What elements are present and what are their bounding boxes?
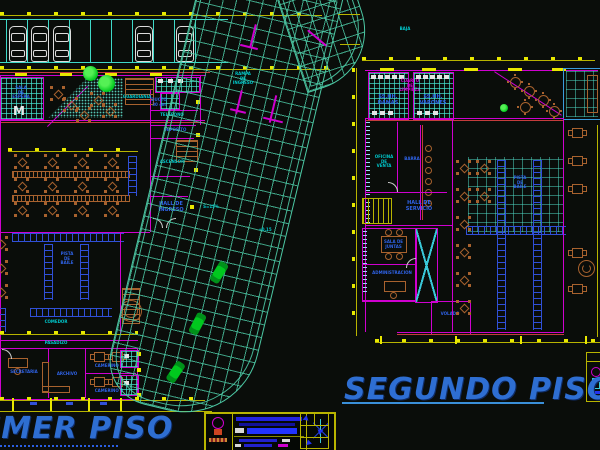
room-label: PASADIZO <box>36 341 76 346</box>
table-two <box>572 156 583 166</box>
table-two <box>94 377 105 387</box>
table <box>14 154 29 169</box>
chair <box>385 253 392 260</box>
stairs <box>362 198 392 224</box>
fixture <box>423 75 428 79</box>
table-two <box>94 352 105 362</box>
column-post <box>120 398 122 411</box>
wall-accent <box>397 334 564 335</box>
desk <box>384 281 406 292</box>
car-green-icon <box>188 312 207 336</box>
column-post <box>88 398 90 411</box>
counter <box>42 386 70 393</box>
stool <box>425 178 432 185</box>
table-two <box>572 248 583 258</box>
bench <box>12 195 130 202</box>
stool <box>425 156 432 163</box>
fixture <box>425 111 430 115</box>
room-label: SALA DE ESPERA <box>6 86 36 100</box>
column-post <box>380 336 382 344</box>
chair <box>390 292 397 299</box>
stool <box>425 167 432 174</box>
car-icon <box>31 26 49 62</box>
dimension-line <box>8 151 138 152</box>
legend-divider <box>301 425 328 426</box>
table <box>456 188 471 203</box>
column-post <box>585 336 587 344</box>
dance-strip <box>533 160 542 330</box>
room-label: DUCTO 30 cm <box>148 98 170 107</box>
column-post <box>455 336 457 344</box>
planter-icon <box>578 260 595 277</box>
fixture <box>371 75 376 79</box>
table <box>44 202 59 217</box>
dimension-line <box>338 14 360 15</box>
dimension-line <box>375 342 600 343</box>
room-label: OFICINA DE VENTA <box>371 155 397 169</box>
fixture <box>380 111 385 115</box>
first-floor-title: PRIMER PISO <box>0 411 173 446</box>
title-block-divider <box>232 414 233 450</box>
stall-divider <box>27 19 28 63</box>
column-post <box>520 336 522 344</box>
wall <box>362 300 415 301</box>
wall-dash <box>380 68 394 71</box>
legend-box <box>300 412 329 449</box>
revolving-door-icon: M <box>13 104 25 118</box>
bar-counter <box>128 156 137 196</box>
arrow-icon <box>303 415 311 423</box>
title-text-bar <box>244 444 272 447</box>
wall-dash <box>15 73 27 76</box>
axis-tag <box>66 402 73 405</box>
table <box>0 236 8 251</box>
table <box>456 216 471 231</box>
car-green-icon <box>209 260 229 284</box>
desk <box>8 358 28 368</box>
room-label: HALL DE SERVICIO <box>398 201 440 213</box>
ramp-label: S=15% <box>198 205 224 210</box>
table <box>104 154 119 169</box>
fixture <box>437 75 442 79</box>
axis-tag <box>30 402 37 405</box>
fixture <box>372 111 377 115</box>
round-table <box>510 77 521 88</box>
wall <box>452 120 453 332</box>
round-table <box>524 86 535 97</box>
chair <box>385 229 392 236</box>
title-text-chip <box>278 444 288 447</box>
wall-dash <box>508 68 522 71</box>
wall <box>563 118 564 333</box>
table <box>74 154 89 169</box>
table <box>102 103 117 118</box>
table <box>74 202 89 217</box>
dimension-line <box>597 125 598 337</box>
person-figure-icon <box>209 438 227 442</box>
dimension-line <box>356 68 357 336</box>
table-two <box>572 128 583 138</box>
dimension-line <box>340 44 360 45</box>
arrow-icon <box>306 439 312 446</box>
fixture <box>416 75 421 79</box>
chair <box>396 229 403 236</box>
person-figure-icon <box>214 429 222 435</box>
title-text-bar <box>236 417 302 421</box>
wall-dash <box>464 68 478 71</box>
wall <box>397 332 564 333</box>
wc-detail-rule <box>587 361 600 362</box>
table <box>104 178 119 193</box>
cad-canvas: SALA DE ESPERA M GUARDIANIA DUCTO 30 cm … <box>0 0 600 450</box>
wall <box>397 122 398 192</box>
table-two <box>572 184 583 194</box>
room-label: ARCHIVO <box>52 372 82 377</box>
arrow-icon <box>316 427 324 435</box>
fixture <box>385 75 390 79</box>
first-floor-title-underline <box>0 445 118 447</box>
table <box>0 260 8 275</box>
dance-strip <box>12 233 124 242</box>
second-floor-title-underline <box>342 402 544 404</box>
car-green-icon <box>165 360 185 384</box>
title-text-bar <box>239 423 295 426</box>
room-label: COMEDOR <box>36 320 76 325</box>
tree-icon <box>98 75 115 92</box>
wall-accent <box>365 120 563 121</box>
ramp-label: +0.15 <box>252 228 278 233</box>
dance-strip <box>466 226 566 235</box>
title-text-bar <box>247 428 297 434</box>
fixture <box>444 75 449 79</box>
room-label: PISTA DE BAILE <box>505 176 535 190</box>
table <box>456 244 471 259</box>
room-label: SALA DE JUNTAS <box>381 240 406 249</box>
stall-divider <box>132 19 133 63</box>
title-text-chip <box>235 444 241 447</box>
room-label: PISTA DE BAILE <box>52 252 82 266</box>
person-figure-icon <box>212 417 224 429</box>
room-label: ADMINISTRACION <box>372 271 412 276</box>
wall-dash <box>60 73 72 76</box>
stall-divider <box>6 19 7 63</box>
plant-icon <box>500 104 508 112</box>
legend-divider <box>301 437 328 438</box>
bar-counter <box>587 75 598 113</box>
car-icon <box>53 26 71 62</box>
title-block-rule <box>234 436 304 437</box>
table-two <box>572 284 583 294</box>
fixture <box>168 79 173 83</box>
fixture <box>417 111 422 115</box>
round-table <box>538 95 549 106</box>
column-post <box>50 398 52 411</box>
stall-divider <box>111 19 112 63</box>
table <box>44 178 59 193</box>
car-icon <box>9 26 27 62</box>
ramp-label: BAJA <box>392 27 418 32</box>
title-text-chip <box>235 428 244 433</box>
dance-strip <box>497 160 506 330</box>
axis-tag <box>100 402 107 405</box>
room-label: SS.HH. VARONES <box>419 95 447 107</box>
table <box>456 272 471 287</box>
table <box>76 107 91 122</box>
round-table <box>549 106 560 117</box>
window-strip <box>363 231 367 295</box>
round-table <box>520 102 531 113</box>
wall <box>365 118 563 119</box>
table <box>44 154 59 169</box>
car-icon <box>135 26 153 62</box>
wall <box>365 192 447 193</box>
title-text-chip <box>282 439 290 442</box>
fixture <box>378 75 383 79</box>
table <box>74 178 89 193</box>
wall-dash <box>422 68 436 71</box>
fixture <box>388 111 393 115</box>
wall-dash <box>150 73 162 76</box>
table <box>456 160 471 175</box>
chair <box>396 253 403 260</box>
bar-room <box>563 68 600 120</box>
stall-divider <box>153 19 154 63</box>
fixture <box>430 75 435 79</box>
ramp-label: RAMPA DE INGRESO <box>228 72 258 86</box>
fixture <box>158 79 163 83</box>
table <box>14 178 29 193</box>
table <box>476 188 491 203</box>
room-label: SS.HH. DAMAS <box>374 95 402 107</box>
room-label: SECRETARIA <box>2 370 46 375</box>
table <box>456 300 471 315</box>
legend-divider <box>314 413 315 425</box>
table <box>0 284 8 299</box>
dimension-line <box>362 60 595 61</box>
stair-shaft <box>415 228 438 303</box>
dimension-ticks <box>352 68 355 336</box>
room-label: BARRA <box>402 157 422 162</box>
dance-strip <box>0 308 6 332</box>
stall-divider <box>90 19 91 63</box>
table <box>14 202 29 217</box>
wall <box>365 225 452 226</box>
stall-divider <box>174 19 175 63</box>
dance-strip <box>30 308 112 317</box>
bench <box>12 171 130 178</box>
title-text-bar <box>239 439 277 442</box>
stool <box>425 145 432 152</box>
table <box>476 160 491 175</box>
tree-icon <box>83 66 98 81</box>
table <box>104 202 119 217</box>
fixture <box>433 111 438 115</box>
column-post <box>12 398 14 411</box>
